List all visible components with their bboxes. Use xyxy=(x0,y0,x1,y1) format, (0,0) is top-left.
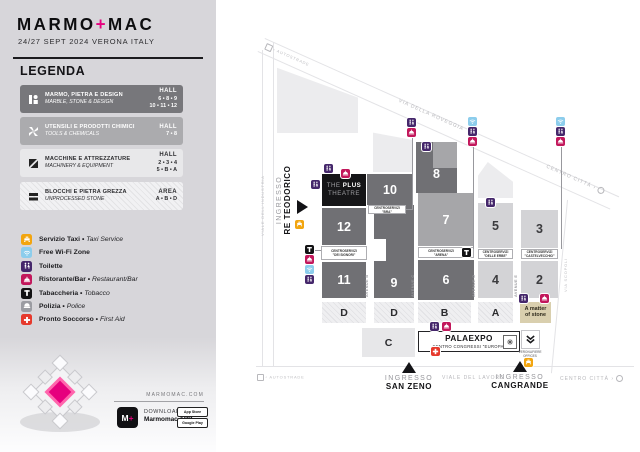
avenue-label: AVENUE E xyxy=(514,275,518,297)
wifi-icon xyxy=(556,117,565,126)
wifi-icon xyxy=(468,117,477,126)
callout-line xyxy=(314,250,321,251)
hall-3: 3 xyxy=(521,210,558,248)
toilette-icon xyxy=(21,261,32,272)
road-label-viale-lavoro: VIALE DEL LAVORO xyxy=(442,375,505,381)
toilette-icon xyxy=(430,322,439,331)
wifi-icon xyxy=(305,265,314,274)
theatre-line1: THE PLUS xyxy=(327,182,362,190)
road-label-viale-industria: VIALE DELL'INDUSTRIA xyxy=(260,174,265,236)
highway-icon xyxy=(257,374,264,381)
area-b: B xyxy=(418,302,471,323)
marmomac-3d-logo xyxy=(10,344,110,444)
callout-line xyxy=(406,209,413,210)
hall-11: 11 xyxy=(322,262,366,298)
service-toilette: Toilette xyxy=(21,261,138,272)
first-aid-icon xyxy=(431,347,440,356)
divider xyxy=(13,57,203,59)
divider xyxy=(114,401,204,402)
a-matter-of-stone: A matter of stone xyxy=(520,302,551,323)
toilette-icon xyxy=(519,294,528,303)
marmomac-logo: MARMO+MAC xyxy=(17,15,154,36)
download-label: DOWNLOAD xyxy=(144,409,181,415)
toilette-icon xyxy=(311,180,320,189)
hall-8-upper xyxy=(433,142,457,168)
theatre-line2: THEATRE xyxy=(328,190,360,198)
restaurant-icon xyxy=(341,169,350,178)
road-label-centro-citta-top: CENTRO CITTÀ › xyxy=(545,163,605,195)
tobacco-icon xyxy=(305,245,314,254)
avenue-label: AVENUE C xyxy=(411,275,415,297)
service-tobacco: Tabaccheria • Tobacco xyxy=(21,288,138,299)
restaurant-icon xyxy=(468,137,477,146)
veronafiere-logo xyxy=(521,330,540,349)
restaurant-icon xyxy=(407,128,416,137)
highway-icon xyxy=(264,43,273,52)
entrance-arrow xyxy=(402,362,416,373)
centroservizi-dei-signori: CENTROSERVIZI "DEI SIGNORI" xyxy=(321,246,367,260)
toilette-icon xyxy=(556,127,565,136)
centroservizi-castelvecchio: CENTROSERVIZI "CASTELVECCHIO" xyxy=(521,249,558,259)
marmomac-app-icon[interactable]: M+ xyxy=(117,407,138,428)
services-legend: Servizio Taxi • Taxi Service Free Wi-Fi … xyxy=(21,234,138,328)
app-store-badge[interactable]: App Store xyxy=(177,407,208,417)
restaurant-icon xyxy=(442,322,451,331)
hall-12: 12 xyxy=(322,208,366,245)
toilette-icon xyxy=(486,198,495,207)
stone-blocks-icon xyxy=(26,189,40,203)
service-wifi: Free Wi-Fi Zone xyxy=(21,247,138,258)
city-icon xyxy=(616,375,623,382)
police-icon xyxy=(21,301,32,312)
service-taxi: Servizio Taxi • Taxi Service xyxy=(21,234,138,245)
area-d-east: D xyxy=(374,302,414,323)
road-line xyxy=(256,366,634,367)
logo-plus: + xyxy=(96,15,108,35)
entrance-san-zeno: INGRESSO SAN ZENO xyxy=(379,375,439,391)
google-play-badge[interactable]: Google Play xyxy=(177,418,208,428)
callout-line xyxy=(473,147,474,249)
first-aid-icon xyxy=(21,314,32,325)
service-block xyxy=(478,162,513,198)
restaurant-icon xyxy=(305,255,314,264)
marmomac-map-page: THE PLUS THEATRE 10 12 11 9 8 7 6 5 4 3 … xyxy=(0,0,640,452)
service-first-aid: Pronto Soccorso • First Aid xyxy=(21,314,138,325)
toilette-icon xyxy=(422,142,431,151)
callout-line xyxy=(561,147,562,249)
toilette-icon xyxy=(305,275,314,284)
tobacco-icon xyxy=(462,248,471,257)
tools-chemicals-icon xyxy=(26,124,40,138)
service-block xyxy=(373,131,413,172)
avenue-label: AVENUE D xyxy=(472,275,476,297)
entrance-re-teodorico: INGRESSO RE TEODORICO xyxy=(276,157,292,243)
restaurant-icon xyxy=(540,294,549,303)
machinery-icon xyxy=(26,156,40,170)
hall-4: 4 xyxy=(478,261,513,298)
marble-design-icon xyxy=(26,92,40,106)
toilette-icon xyxy=(468,127,477,136)
legend-category-machinery-equipment: MACCHINE E ATTREZZATUREMACHINERY & EQUIP… xyxy=(20,149,183,177)
avenue-label: AVENUE B xyxy=(365,275,369,297)
centroservizi-delle-erbe: CENTROSERVIZI "DELLE ERBE" xyxy=(478,249,513,259)
sidebar-footer: MARMOMAC.COM M+ DOWNLOAD Marmomac APP Ap… xyxy=(0,352,216,452)
city-icon xyxy=(596,186,605,195)
hall-5: 5 xyxy=(478,203,513,248)
toilette-icon xyxy=(324,164,333,173)
website-url: MARMOMAC.COM xyxy=(146,392,204,398)
road-label-autostrade-bottom: ‹ AUTOSTRADE xyxy=(257,374,305,381)
taxi-icon xyxy=(21,234,32,245)
callout-line xyxy=(412,138,413,209)
road-label-via-scopoli: VIA SCOPOLI xyxy=(563,250,568,292)
road-label-centro-citta-bottom: CENTRO CITTÀ › xyxy=(560,375,623,382)
legend-category-tools-chemicals: UTENSILI E PRODOTTI CHIMICITOOLS & CHEMI… xyxy=(20,117,183,145)
hall-2: 2 xyxy=(521,261,558,298)
hall-10: 10 xyxy=(367,174,413,205)
event-date-location: 24/27 SEPT 2024 VERONA ITALY xyxy=(18,37,155,46)
wifi-icon xyxy=(21,247,32,258)
toilette-icon xyxy=(407,118,416,127)
hall-7: 7 xyxy=(418,193,474,246)
legend-category-marble-stone-design: MARMO, PIETRA E DESIGNMARBLE, STONE & DE… xyxy=(20,85,183,113)
area-c: C xyxy=(362,328,415,357)
hall-9-passage xyxy=(374,239,386,261)
taxi-icon xyxy=(524,358,533,367)
service-restaurant: Ristorante/Bar • Restaurant/Bar xyxy=(21,274,138,285)
area-d-west: D xyxy=(322,302,366,323)
road-line xyxy=(273,42,274,366)
legend-sidebar: MARMO+MAC 24/27 SEPT 2024 VERONA ITALY L… xyxy=(0,0,216,452)
legend-title: LEGENDA xyxy=(20,64,85,78)
taxi-icon xyxy=(295,220,304,229)
legend-category-unprocessed-stone: BLOCCHI E PIETRA GREZZAUNPROCESSED STONE… xyxy=(20,182,183,210)
the-plus-theatre: THE PLUS THEATRE xyxy=(322,174,366,206)
congress-icon xyxy=(503,335,517,349)
restaurant-icon xyxy=(21,274,32,285)
area-a: A xyxy=(478,302,513,323)
tobacco-icon xyxy=(21,288,32,299)
entrance-arrow xyxy=(297,200,308,214)
restaurant-icon xyxy=(556,137,565,146)
service-police: Polizia • Police xyxy=(21,301,138,312)
hall-6: 6 xyxy=(418,260,474,300)
centroservizi-bra: CENTROSERVIZI "BRA" xyxy=(368,205,406,214)
